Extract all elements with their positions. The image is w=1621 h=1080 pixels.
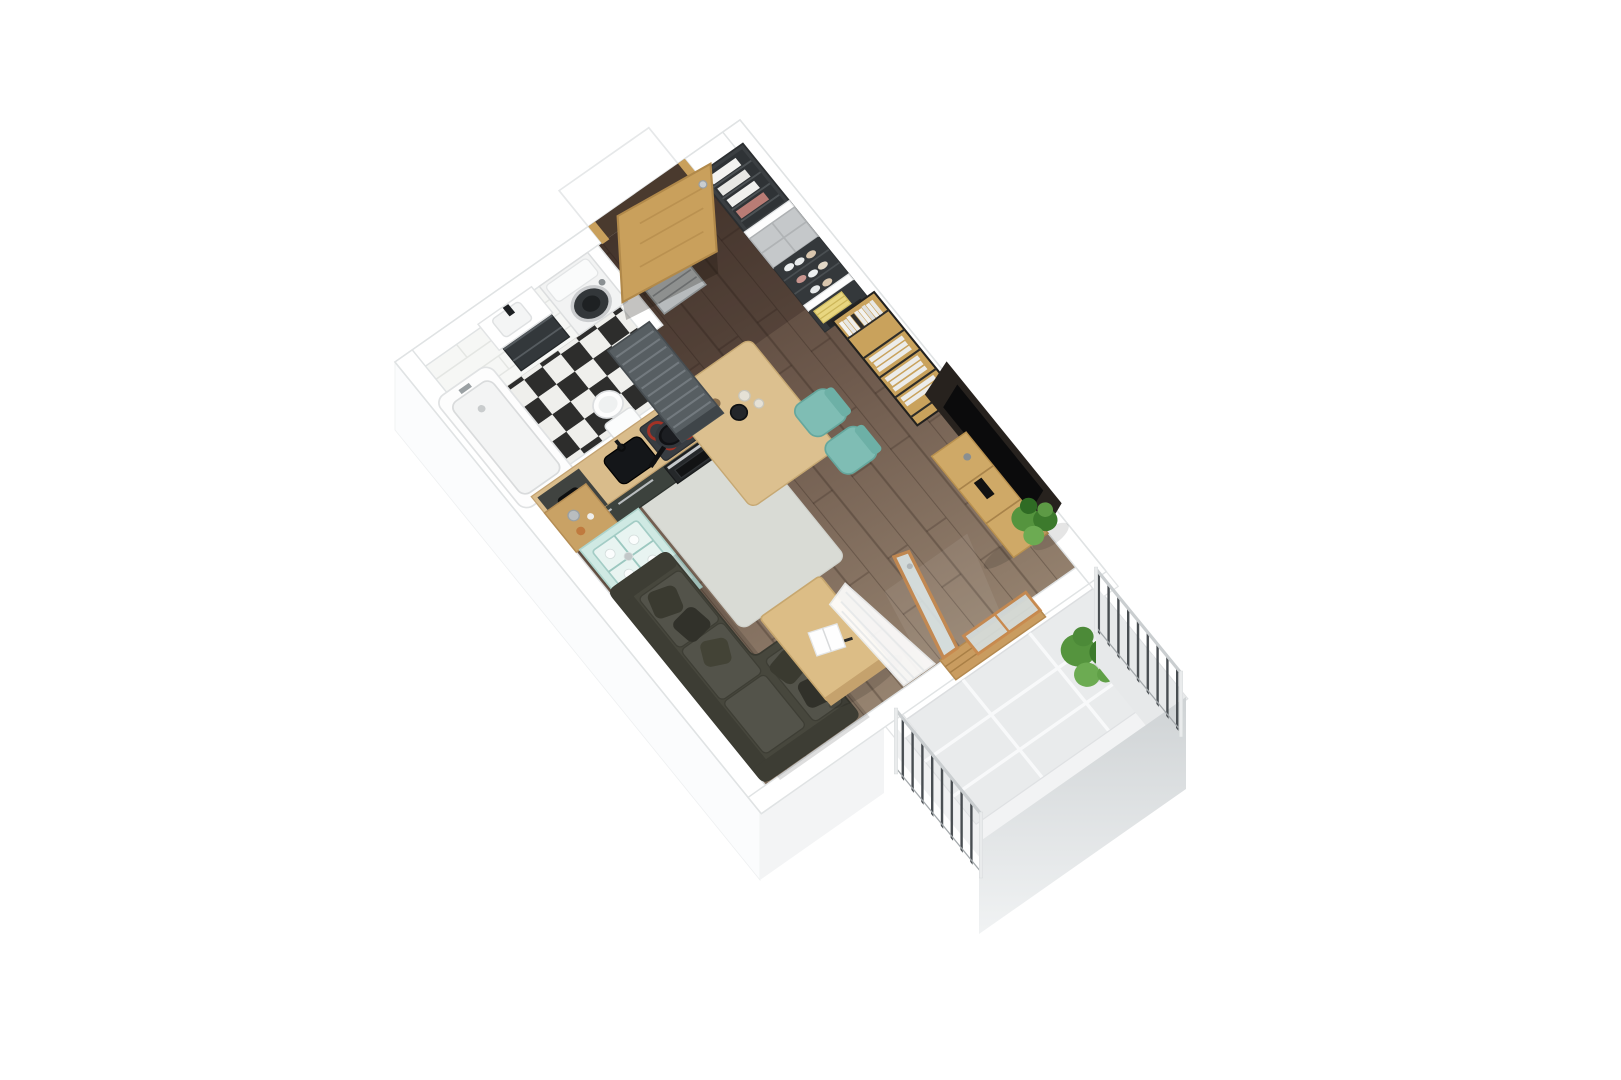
end-post	[979, 812, 982, 878]
floor-plan-svg	[0, 0, 1621, 1080]
end-post	[1179, 671, 1182, 737]
end-post	[894, 708, 897, 774]
end-post	[1094, 567, 1097, 633]
floor-plan-render	[0, 0, 1621, 1080]
